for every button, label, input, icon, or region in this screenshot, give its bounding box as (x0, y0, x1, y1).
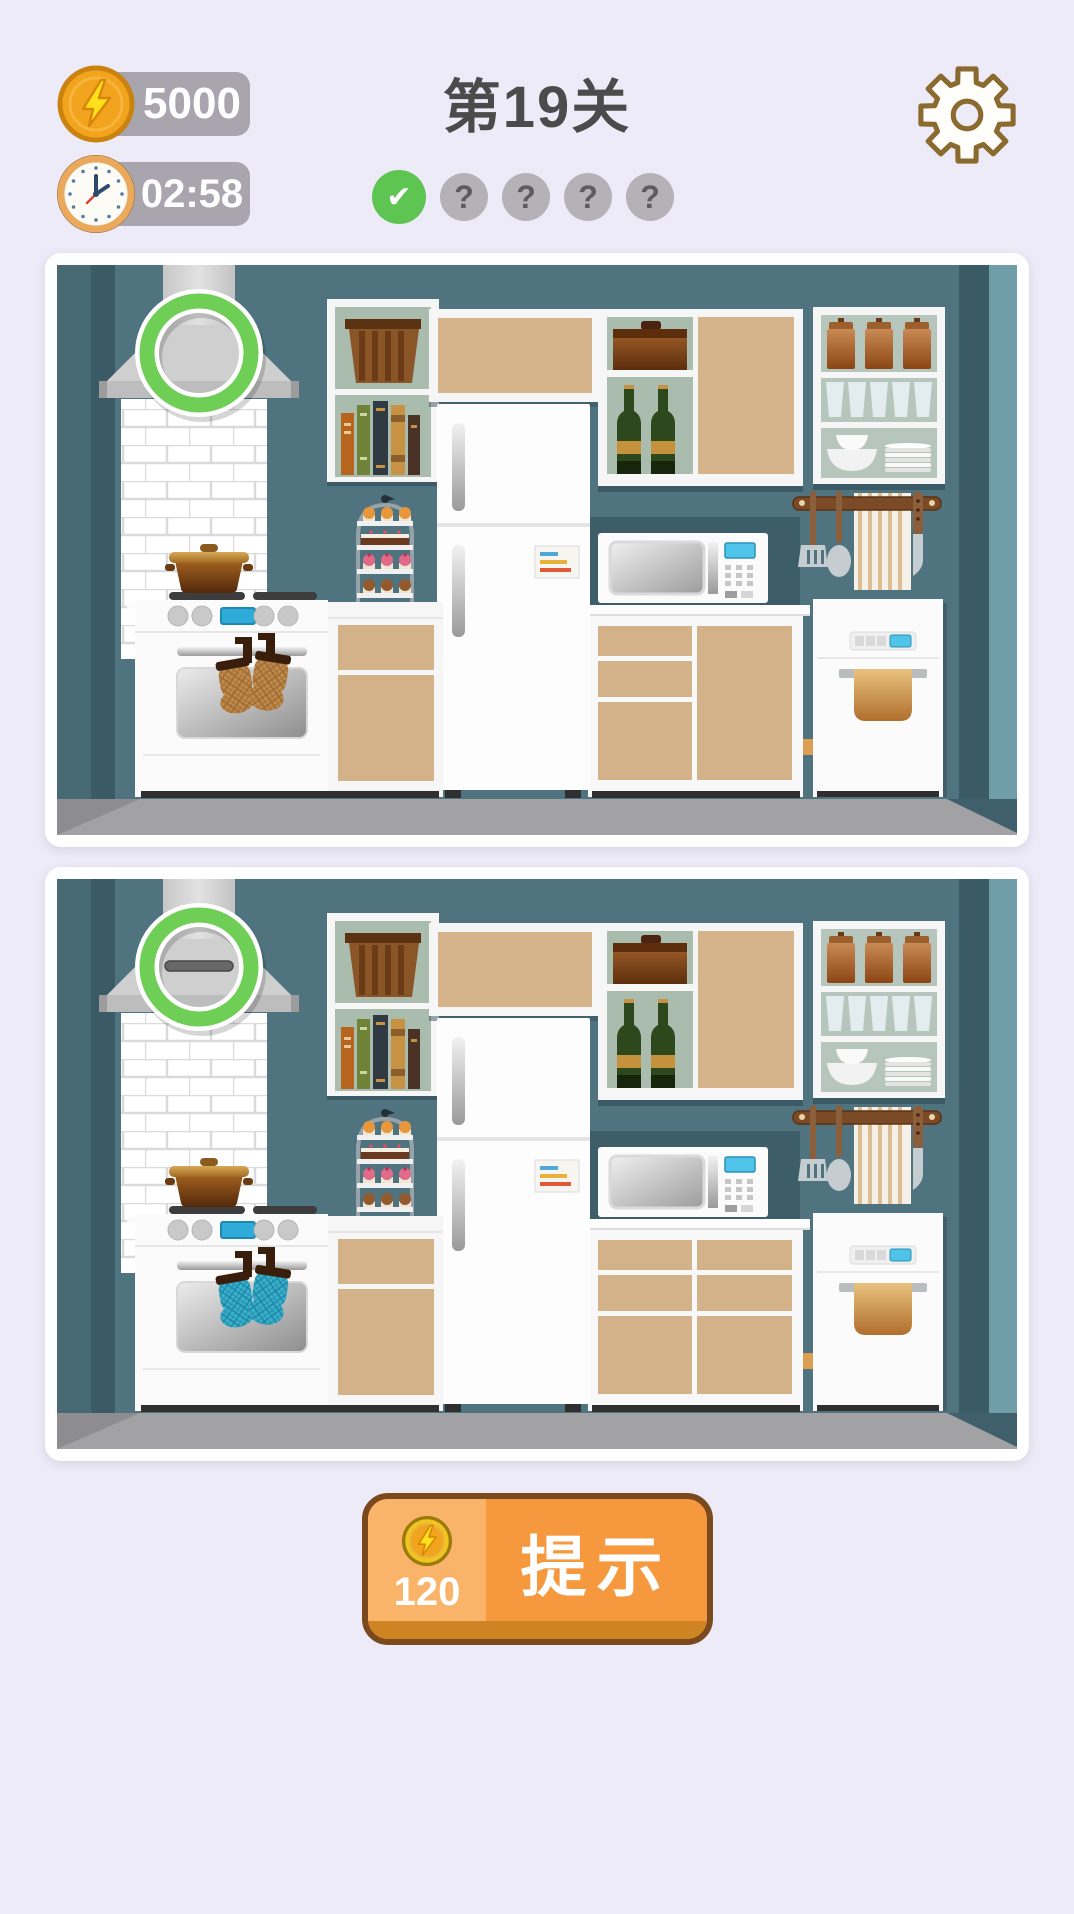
fridge (437, 1018, 590, 1412)
dishwasher-kickboard (817, 791, 939, 797)
bookshelf-cabinet (327, 299, 439, 486)
progress-slot-unfound: ? (502, 173, 550, 221)
clock-icon (56, 154, 136, 234)
hand-towel (854, 669, 912, 721)
bookshelf-cabinet (327, 913, 439, 1100)
microwave (588, 517, 800, 607)
jars (827, 318, 931, 369)
hint-cost-area: 120 (368, 1499, 486, 1639)
knife (913, 492, 923, 576)
hand-towel (854, 1283, 912, 1335)
side-cabinet (328, 602, 443, 797)
fridge-note (535, 546, 579, 578)
progress-slot-unfound: ? (440, 173, 488, 221)
cabinet-kickboard (592, 1405, 800, 1412)
wine-cabinet (598, 309, 803, 492)
coin-icon (401, 1515, 453, 1570)
storage-basket (345, 933, 421, 997)
settings-button[interactable] (916, 64, 1018, 166)
timer-value: 02:58 (141, 172, 243, 217)
dishwasher-kickboard (817, 1405, 939, 1411)
timer: 02:58 (98, 162, 250, 226)
side-cabinet (328, 1216, 443, 1411)
game-screen: 5000 02:58 第19关 ✔???? (0, 0, 1074, 1914)
hint-label: 提示 (486, 1499, 707, 1639)
fridge (437, 404, 590, 798)
cupcakes-row-1 (363, 1121, 411, 1135)
cabinet-kickboard (592, 791, 800, 798)
cabinet-above-fridge (429, 309, 601, 407)
puzzle-image-top[interactable] (45, 253, 1029, 847)
stove-kickboard (141, 1405, 439, 1412)
puzzle-image-bottom[interactable] (45, 867, 1029, 1461)
kitchen-scene (57, 879, 1017, 1449)
stove-display (221, 608, 255, 624)
knife (913, 1106, 923, 1190)
progress-slot-unfound: ? (564, 173, 612, 221)
dishwasher (813, 599, 947, 797)
cupcakes-row-3 (363, 553, 411, 569)
difference-progress: ✔???? (372, 168, 674, 226)
wine-cabinet (598, 923, 803, 1106)
gear-icon (916, 64, 1018, 166)
progress-slot-unfound: ? (626, 173, 674, 221)
hood-vent-handle (165, 961, 233, 971)
microwave-keypad (725, 1179, 753, 1200)
microwave (588, 1131, 800, 1221)
cabinet-above-fridge (429, 923, 601, 1021)
dish-shelf (813, 307, 945, 490)
progress-slot-found: ✔ (372, 170, 426, 224)
cupcakes-row-1 (363, 507, 411, 521)
stove-display (221, 1222, 255, 1238)
dish-shelf (813, 921, 945, 1104)
difference-spot-counter-cabinet[interactable] (581, 1219, 810, 1411)
cupcakes-row-4 (363, 579, 411, 593)
microwave-keypad (725, 565, 753, 586)
jars (827, 932, 931, 983)
difference-spot-counter-cabinet[interactable] (581, 605, 810, 797)
kitchen-scene (57, 265, 1017, 835)
dishwasher (813, 1213, 947, 1411)
stove-kickboard (141, 791, 439, 798)
cupcakes-row-4 (363, 1193, 411, 1207)
level-title: 第19关 (0, 60, 1074, 144)
fridge-note (535, 1160, 579, 1192)
hint-button[interactable]: 120 提示 (362, 1493, 713, 1645)
cupcakes-row-3 (363, 1167, 411, 1183)
storage-basket (345, 319, 421, 383)
hint-cost: 120 (394, 1570, 461, 1614)
